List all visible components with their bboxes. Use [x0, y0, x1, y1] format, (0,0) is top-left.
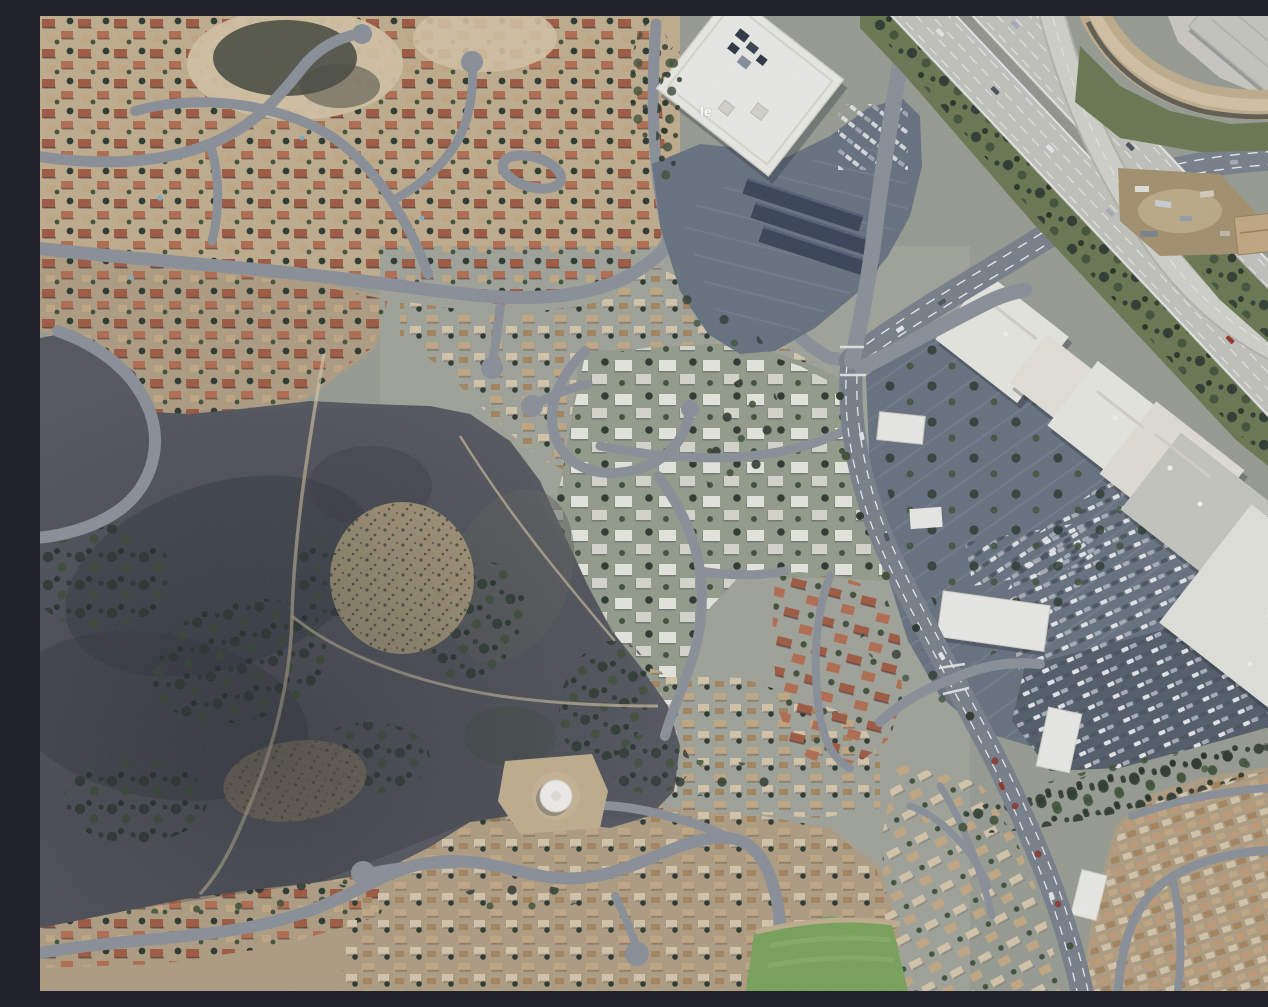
photo-grain-overlay	[40, 16, 1268, 991]
imagery-watermark-fragment: le	[700, 104, 712, 119]
satellite-map[interactable]: le	[40, 16, 1268, 991]
aerial-imagery	[40, 16, 1268, 991]
